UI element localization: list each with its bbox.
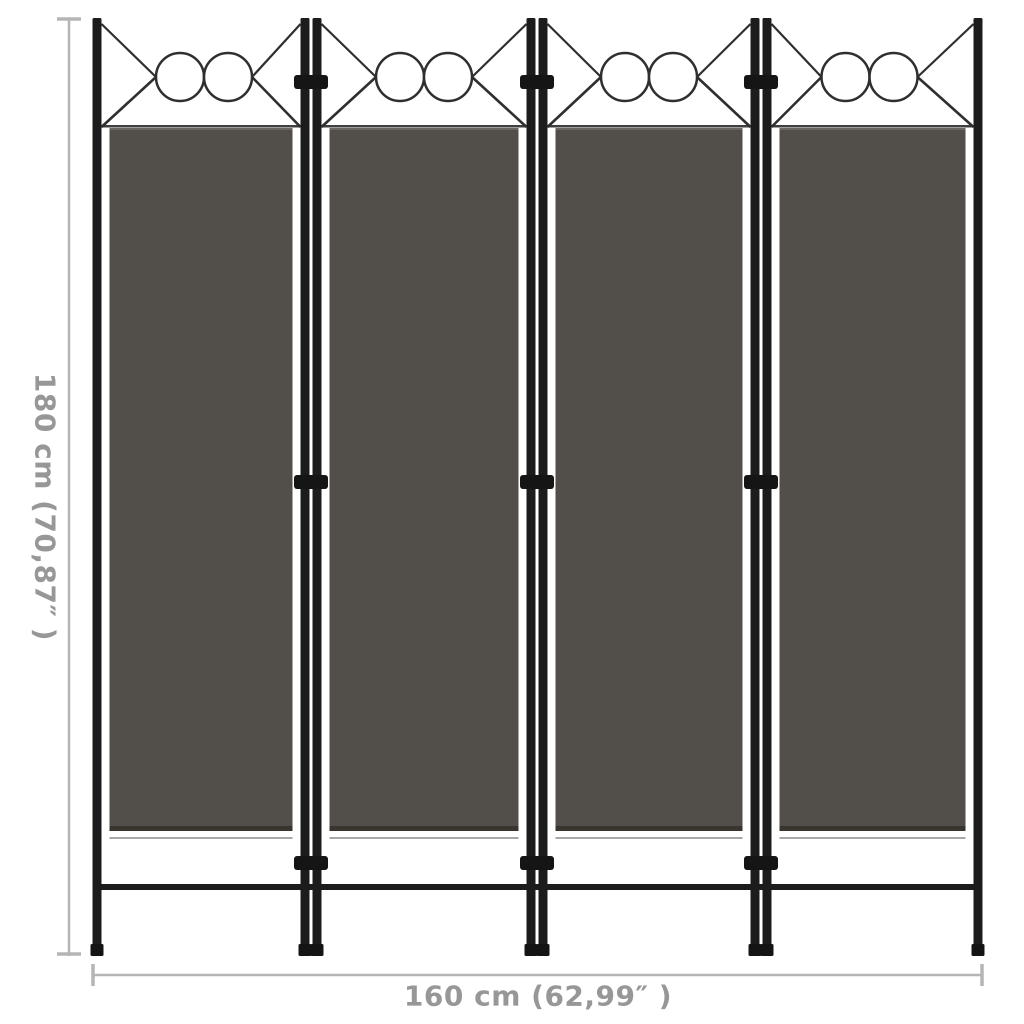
foot-bar [93, 884, 316, 890]
decorative-cross-line [918, 24, 974, 77]
top-frame-tube [322, 125, 527, 128]
decorative-cross-line [252, 77, 301, 127]
decorative-cross-line [322, 77, 377, 127]
frame-pole [974, 18, 983, 955]
pole-foot [749, 944, 762, 956]
panel-fabric [110, 128, 293, 831]
hinge-connector [520, 856, 554, 870]
foot-bar [757, 884, 983, 890]
divider-panel [93, 24, 316, 890]
panel-hem-shadow [330, 837, 519, 839]
decorative-circle [870, 53, 918, 101]
decorative-cross-line [548, 77, 602, 127]
decorative-cross-line [252, 24, 301, 77]
panel-hem-shadow [780, 837, 966, 839]
width-dimension-label: 160 cm (62,99″ ) [404, 980, 672, 1013]
decorative-cross-line [772, 24, 822, 77]
frame-pole-group [520, 18, 554, 956]
frame-pole [93, 18, 102, 955]
decorative-cross-line [322, 24, 377, 77]
hinge-connector [294, 856, 328, 870]
decorative-cross-line [772, 77, 822, 127]
decorative-circle [424, 53, 472, 101]
height-dimension-label: 180 cm (70,87″ ) [29, 373, 62, 641]
frame-pole-group [91, 18, 104, 956]
decorative-cross-line [472, 77, 527, 127]
panel-fabric [330, 128, 519, 831]
decorative-circle [649, 53, 697, 101]
frame-pole-group [744, 18, 778, 956]
panel-fabric-bottom-edge [330, 826, 519, 831]
hinge-connector [520, 475, 554, 489]
foot-bar [307, 884, 542, 890]
decorative-circle [822, 53, 870, 101]
decorative-cross-line [918, 77, 974, 127]
pole-foot [91, 944, 104, 956]
frame-pole-group [294, 18, 328, 956]
panel-fabric-bottom-edge [780, 826, 966, 831]
pole-foot [525, 944, 538, 956]
hinge-connector [294, 475, 328, 489]
divider-panel [757, 24, 983, 890]
decorative-cross-line [472, 24, 527, 77]
foot-bar [533, 884, 766, 890]
decorative-cross-line [102, 24, 157, 77]
decorative-cross-line [102, 77, 157, 127]
panel-fabric-bottom-edge [110, 826, 293, 831]
divider-panel [307, 24, 542, 890]
pole-foot [537, 944, 550, 956]
product-dimension-image: 180 cm (70,87″ ) 160 cm (62,99″ ) [0, 0, 1024, 1024]
panel-fabric [780, 128, 966, 831]
pole-foot [972, 944, 985, 956]
hinge-connector [744, 75, 778, 89]
hinge-connector [744, 856, 778, 870]
decorative-circle [156, 53, 204, 101]
top-frame-tube [548, 125, 751, 128]
panel-fabric-bottom-edge [556, 826, 743, 831]
panel-fabric-top-edge [780, 128, 966, 130]
divider-panel [533, 24, 766, 890]
decorative-circle [204, 53, 252, 101]
hinge-connector [744, 475, 778, 489]
decorative-cross-line [697, 24, 751, 77]
panel-fabric-top-edge [330, 128, 519, 130]
room-divider-graphic [0, 0, 1024, 1024]
panel-hem-shadow [556, 837, 743, 839]
pole-foot [299, 944, 312, 956]
hinge-connector [520, 75, 554, 89]
decorative-cross-line [697, 77, 751, 127]
top-frame-tube [772, 125, 974, 128]
frame-pole-group [972, 18, 985, 956]
hinge-connector [294, 75, 328, 89]
panel-fabric-top-edge [110, 128, 293, 130]
decorative-circle [376, 53, 424, 101]
panel-hem-shadow [110, 837, 293, 839]
top-frame-tube [102, 125, 301, 128]
decorative-circle [601, 53, 649, 101]
decorative-cross-line [548, 24, 602, 77]
pole-foot [761, 944, 774, 956]
pole-foot [311, 944, 324, 956]
panel-fabric [556, 128, 743, 831]
panel-fabric-top-edge [556, 128, 743, 130]
